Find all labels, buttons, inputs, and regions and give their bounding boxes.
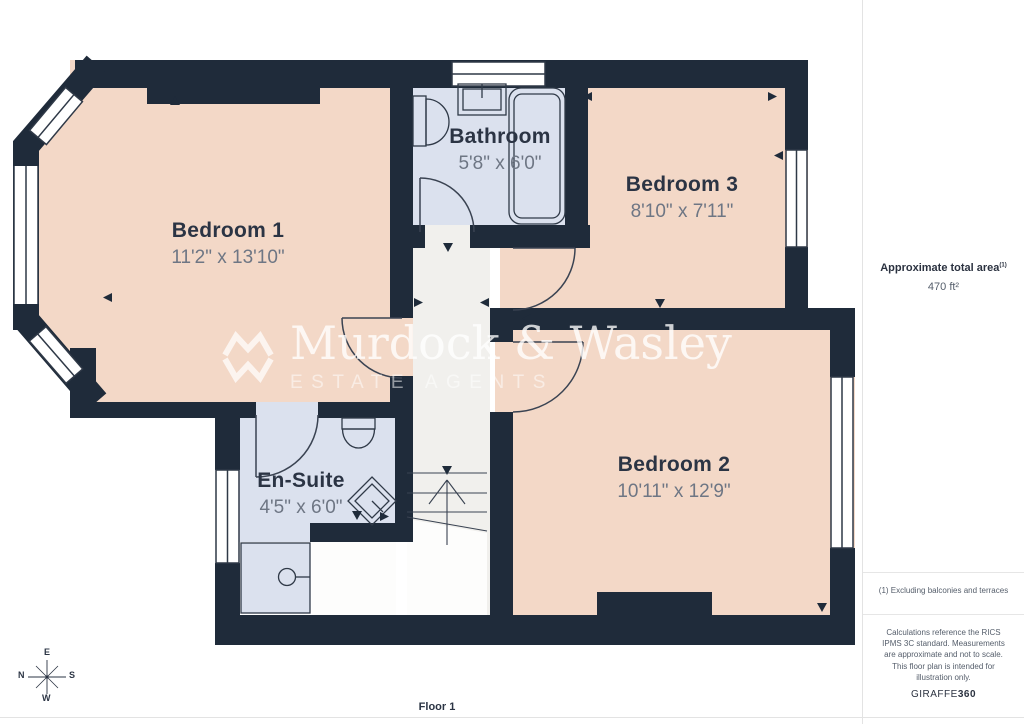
window-bedroom3-right xyxy=(786,150,807,247)
floor-label: Floor 1 xyxy=(419,701,456,713)
compass-label-left: N xyxy=(18,670,25,680)
provider-brand-suffix: 360 xyxy=(958,689,976,700)
room-name: Bedroom 3 xyxy=(626,173,738,197)
disclaimer-text: Calculations reference the RICS IPMS 3C … xyxy=(876,627,1011,683)
compass-label-bottom: W xyxy=(42,693,51,703)
room-label-bedroom-1: Bedroom 1 11'2" x 13'10" xyxy=(171,219,284,269)
sidebar: Approximate total area(1) 470 ft² (1) Ex… xyxy=(862,0,1024,724)
shower-enclosure-icon xyxy=(241,543,310,613)
sidebar-divider-middle xyxy=(863,614,1024,615)
sidebar-divider-top xyxy=(863,572,1024,573)
total-area-label-text: Approximate total area xyxy=(880,262,999,274)
room-dimensions: 11'2" x 13'10" xyxy=(171,247,284,269)
room-name: Bedroom 2 xyxy=(617,453,730,477)
room-dimensions: 10'11" x 12'9" xyxy=(617,481,730,503)
room-dimensions: 4'5" x 6'0" xyxy=(257,497,345,519)
room-label-en-suite: En-Suite 4'5" x 6'0" xyxy=(257,469,345,519)
room-dimensions: 8'10" x 7'11" xyxy=(626,201,738,223)
floorplan-page: Murdock & Wasley ESTATE AGENTS Bedroom 1… xyxy=(0,0,1024,724)
room-label-bedroom-3: Bedroom 3 8'10" x 7'11" xyxy=(626,173,738,223)
provider-brand-name: GIRAFFE xyxy=(911,689,958,700)
room-dimensions: 5'8" x 6'0" xyxy=(449,153,551,175)
total-area-footnote-marker: (1) xyxy=(999,262,1006,268)
room-name: Bedroom 1 xyxy=(171,219,284,243)
total-area-block: Approximate total area(1) 470 ft² xyxy=(863,262,1024,293)
window-ensuite-left xyxy=(216,470,239,563)
room-name: Bathroom xyxy=(449,125,551,149)
window-bedroom2-right xyxy=(831,377,853,548)
compass-label-right: S xyxy=(69,670,75,680)
page-bottom-divider xyxy=(0,717,1024,718)
area-footnote: (1) Excluding balconies and terraces xyxy=(869,586,1018,595)
room-label-bathroom: Bathroom 5'8" x 6'0" xyxy=(449,125,551,175)
compass-label-top: E xyxy=(44,647,50,657)
compass-icon: E S W N xyxy=(16,648,78,706)
provider-brand: GIRAFFE360 xyxy=(863,689,1024,700)
room-label-bedroom-2: Bedroom 2 10'11" x 12'9" xyxy=(617,453,730,503)
total-area-label: Approximate total area(1) xyxy=(863,262,1024,274)
floor-plan-svg xyxy=(0,0,862,724)
floor-fills xyxy=(18,60,855,645)
room-name: En-Suite xyxy=(257,469,345,493)
window-top xyxy=(452,62,545,86)
total-area-value: 470 ft² xyxy=(863,281,1024,293)
